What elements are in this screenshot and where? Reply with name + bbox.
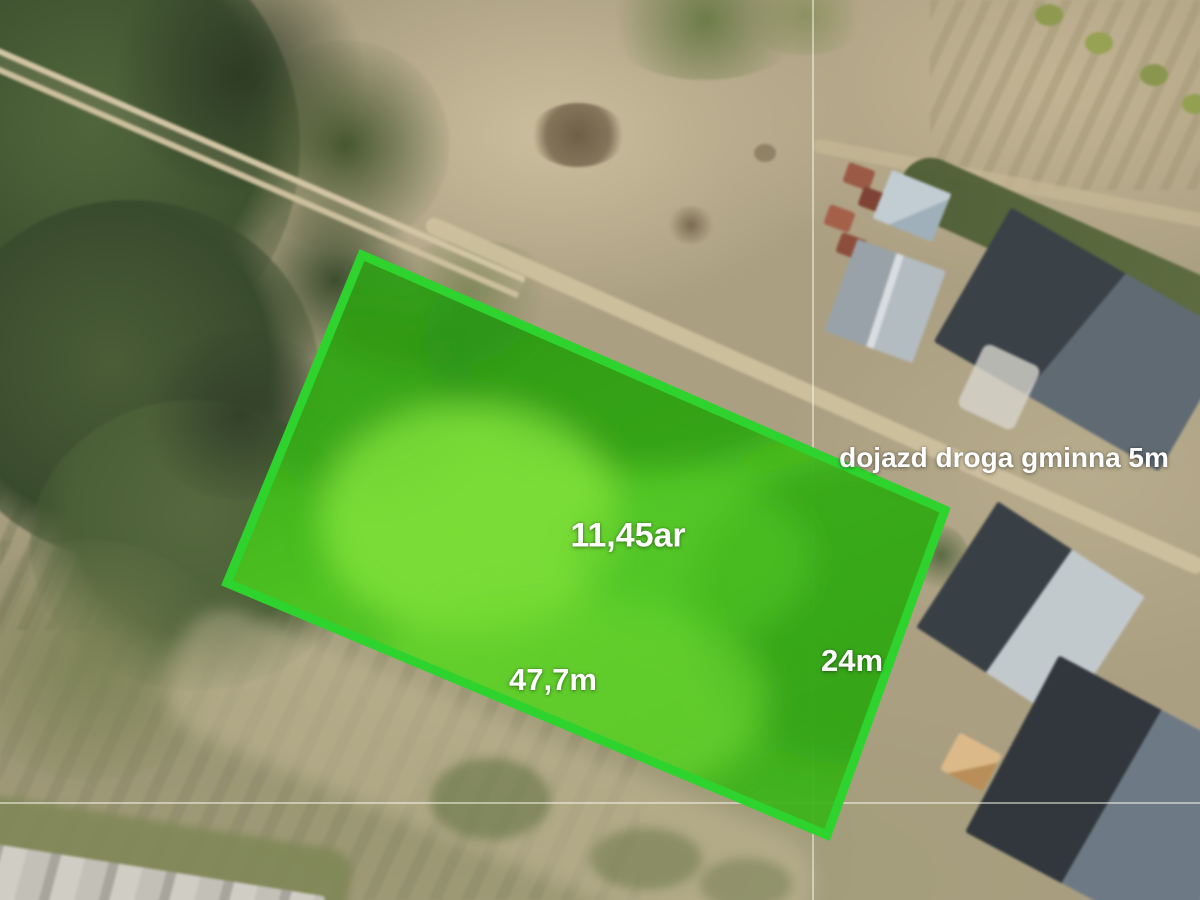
length-label: 47,7m bbox=[509, 662, 597, 698]
width-label: 24m bbox=[821, 643, 883, 679]
parcel-fill-texture bbox=[245, 210, 1020, 810]
aerial-parcel-map: 11,45ar 47,7m 24m dojazd droga gminna 5m bbox=[0, 0, 1200, 900]
access-road-label: dojazd droga gminna 5m bbox=[839, 442, 1169, 474]
area-label: 11,45ar bbox=[570, 517, 685, 556]
